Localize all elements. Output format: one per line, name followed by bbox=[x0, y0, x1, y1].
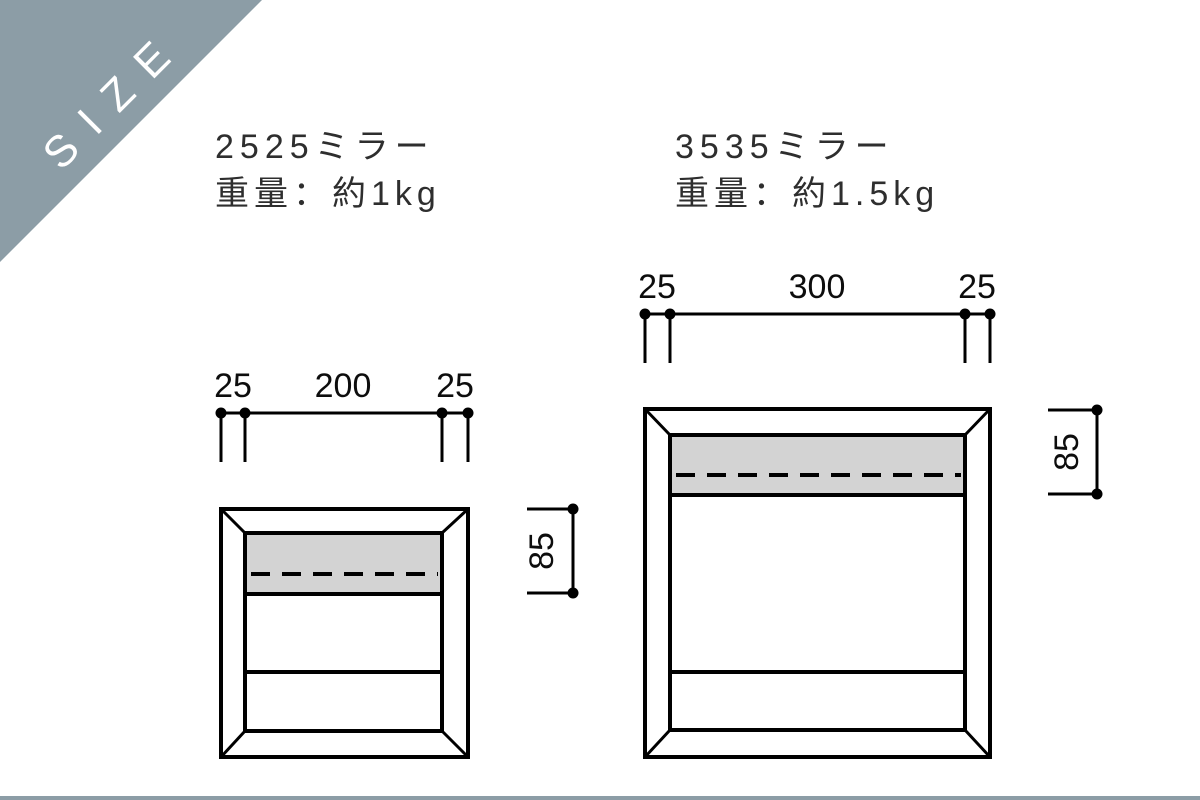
product-name: 2525ミラー bbox=[215, 124, 441, 171]
dimension-dot bbox=[568, 588, 579, 599]
dimension-dot bbox=[985, 309, 996, 320]
extension-lines bbox=[221, 413, 468, 462]
dim-label-band-height: 85 bbox=[523, 532, 561, 570]
dimension-dot bbox=[665, 309, 676, 320]
dimension-dot bbox=[463, 408, 474, 419]
hanger-band bbox=[245, 533, 442, 594]
dimension-dot bbox=[1092, 405, 1103, 416]
dimension-dot bbox=[568, 504, 579, 515]
product-name: 3535ミラー bbox=[675, 124, 939, 171]
dim-label-right-frame: 25 bbox=[958, 268, 996, 306]
hanger-band bbox=[670, 435, 965, 495]
extension-lines bbox=[645, 314, 990, 363]
dimension-dot bbox=[1092, 489, 1103, 500]
product-title-3535: 3535ミラー 重量：約1.5kg bbox=[675, 124, 939, 218]
left-mirror-drawing: 25 200 25 85 bbox=[214, 367, 578, 757]
dimension-dot bbox=[640, 309, 651, 320]
product-title-2525: 2525ミラー 重量：約1kg bbox=[215, 124, 441, 218]
dimension-dot bbox=[240, 408, 251, 419]
dimension-dot bbox=[960, 309, 971, 320]
dim-label-left-frame: 25 bbox=[638, 268, 676, 306]
dim-label-left-frame: 25 bbox=[214, 367, 252, 405]
dim-label-right-frame: 25 bbox=[436, 367, 474, 405]
right-mirror-drawing: 25 300 25 85 bbox=[638, 268, 1102, 757]
dim-label-inner-width: 200 bbox=[315, 367, 372, 405]
dimension-dot bbox=[216, 408, 227, 419]
dimension-dot bbox=[437, 408, 448, 419]
product-weight: 重量：約1kg bbox=[215, 171, 441, 218]
size-diagram-page: 25 200 25 85 bbox=[0, 0, 1200, 800]
product-weight: 重量：約1.5kg bbox=[675, 171, 939, 218]
footer-accent-bar bbox=[0, 796, 1200, 800]
dim-label-inner-width: 300 bbox=[789, 268, 846, 306]
dim-label-band-height: 85 bbox=[1048, 433, 1086, 471]
diagram-canvas: 25 200 25 85 bbox=[0, 0, 1200, 800]
